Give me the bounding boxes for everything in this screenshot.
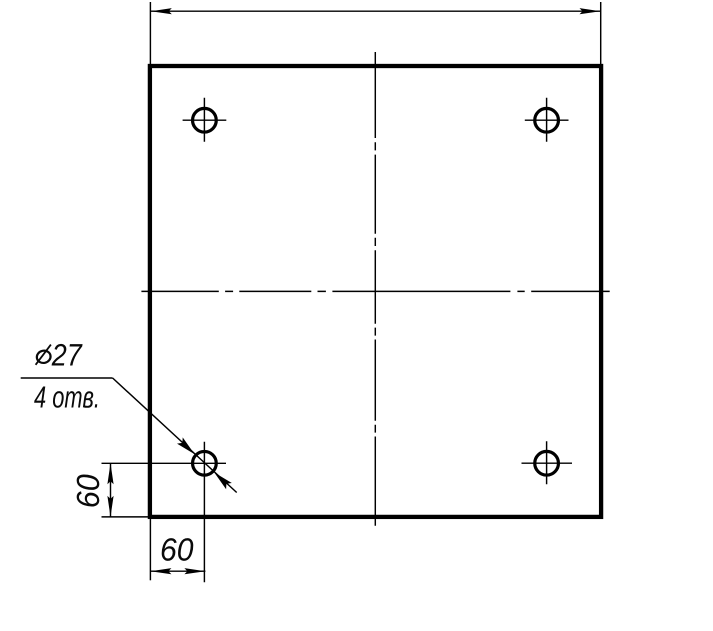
svg-text:60: 60 [70, 474, 106, 508]
svg-text:27: 27 [51, 337, 83, 372]
svg-text:60: 60 [160, 531, 194, 567]
svg-text:4 отв.: 4 отв. [34, 380, 100, 414]
